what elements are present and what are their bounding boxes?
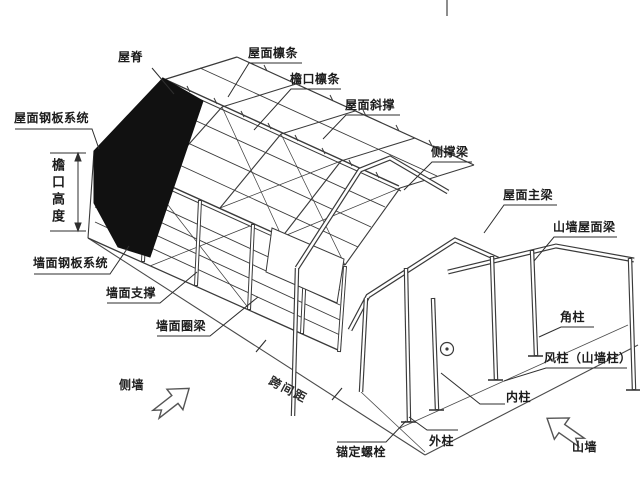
label-gable-wall: 山墙 xyxy=(572,440,597,455)
label-wall-girt: 墙面圈梁 xyxy=(156,319,206,334)
label-inner-column: 内柱 xyxy=(506,390,531,405)
connection-detail-marker xyxy=(441,343,454,356)
label-side-brace-beam: 侧撑梁 xyxy=(431,145,469,160)
label-wall-brace: 墙面支撑 xyxy=(106,286,156,301)
label-corner-column: 角柱 xyxy=(560,310,585,325)
label-side-wall: 侧墙 xyxy=(119,378,144,393)
label-wall-panel-system: 墙面钢板系统 xyxy=(33,256,108,271)
label-roof-brace: 屋面斜撑 xyxy=(345,98,395,113)
leader-roof-brace xyxy=(323,115,400,139)
label-anchor-bolt: 锚定螺栓 xyxy=(336,445,386,460)
label-eave-height: 檐口高度 xyxy=(50,158,63,234)
roof-and-wall-steel-panel xyxy=(94,78,203,257)
label-roof-panel-system: 屋面钢板系统 xyxy=(14,111,89,126)
leader-roof-main-beam xyxy=(484,205,557,233)
label-ridge: 屋脊 xyxy=(118,50,143,65)
leader-corner-column xyxy=(539,327,594,337)
leader-outer-column xyxy=(409,417,458,430)
label-eave-purlin: 檐口檩条 xyxy=(290,72,340,87)
label-roof-main-beam: 屋面主梁 xyxy=(503,188,553,203)
label-outer-column: 外柱 xyxy=(429,434,454,449)
diagram-canvas: 屋脊 屋面檩条 檐口檩条 屋面斜撑 侧撑梁 屋面主梁 山墙屋面梁 角柱 风柱（山… xyxy=(0,0,640,480)
leader-roof-panel-system xyxy=(15,129,99,149)
leader-eave-purlin xyxy=(254,89,341,130)
label-roof-purlin: 屋面檩条 xyxy=(248,46,298,61)
side-wall-arrow-icon xyxy=(148,378,197,424)
label-wind-column: 风柱（山墙柱） xyxy=(544,351,632,366)
leader-wind-column xyxy=(504,368,627,381)
label-gable-roof-beam: 山墙屋面梁 xyxy=(553,220,616,235)
